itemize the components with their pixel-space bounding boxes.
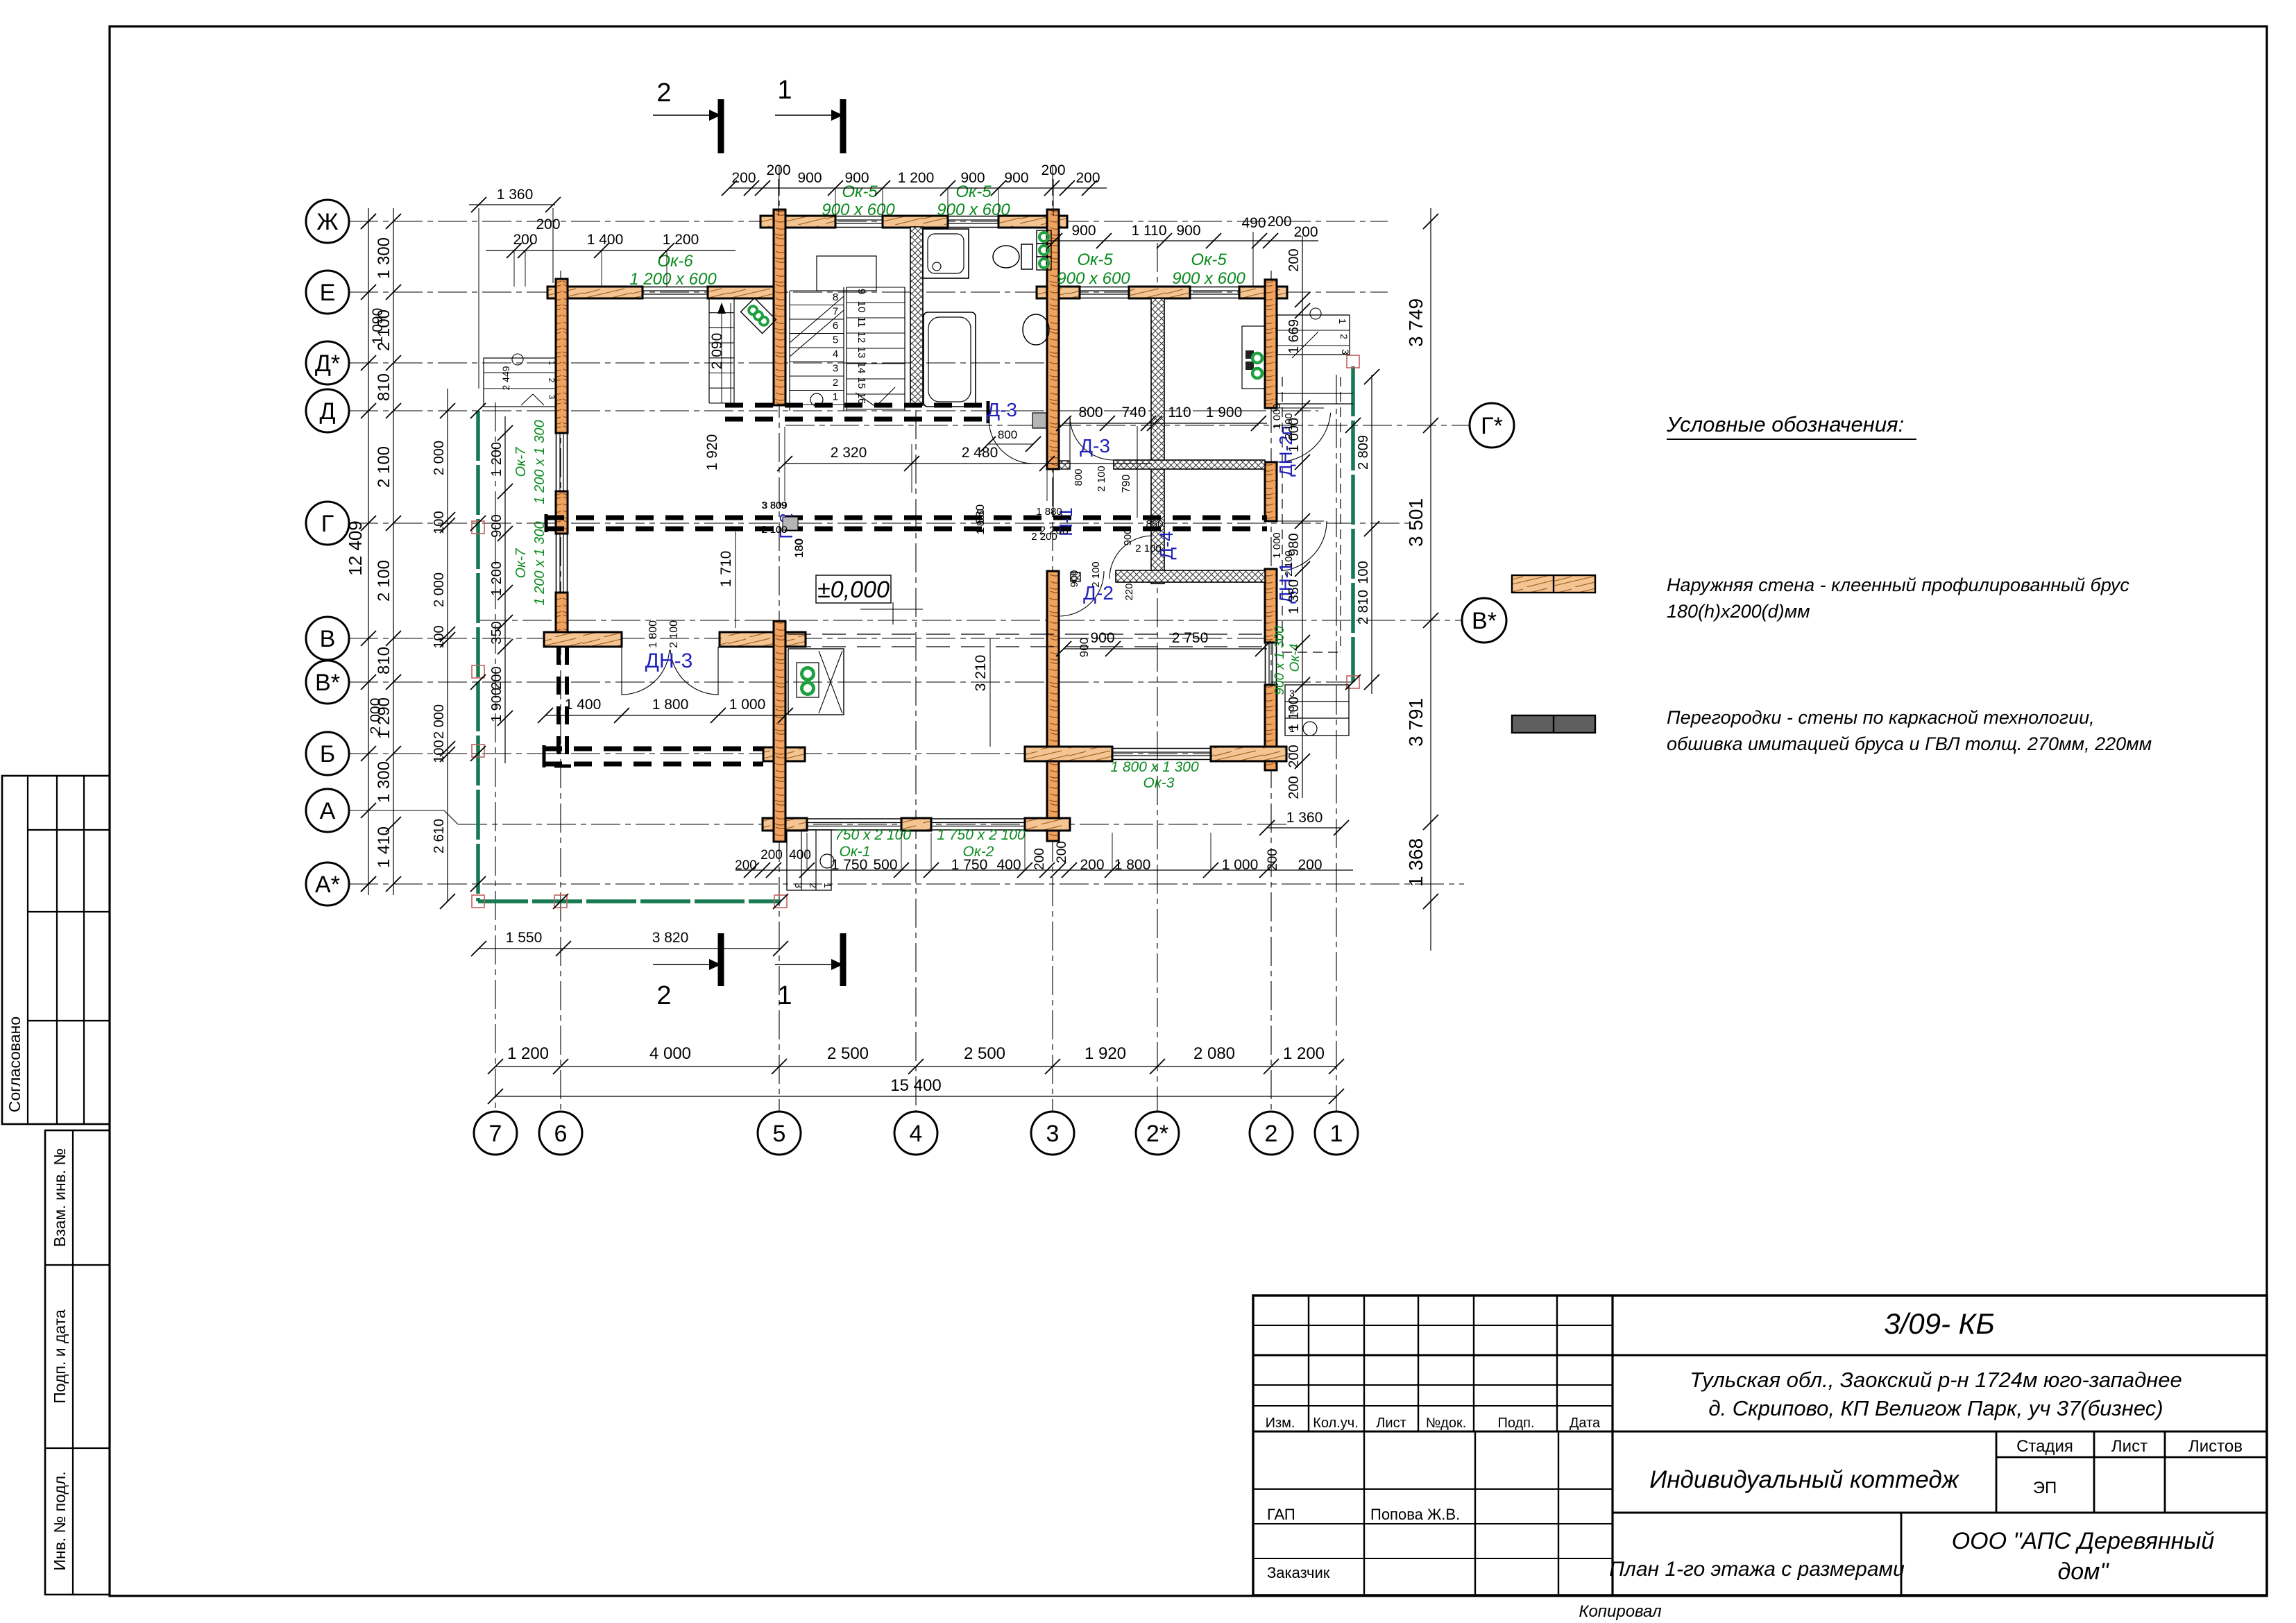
svg-text:Д*: Д* (315, 350, 340, 377)
svg-text:1: 1 (1337, 318, 1348, 324)
svg-text:3: 3 (1340, 349, 1351, 355)
svg-text:7: 7 (489, 1121, 502, 1147)
svg-text:ЭП: ЭП (2033, 1479, 2057, 1497)
svg-text:3 791: 3 791 (1405, 698, 1427, 747)
svg-text:1 200: 1 200 (489, 561, 504, 596)
svg-text:1 200: 1 200 (663, 232, 699, 248)
svg-text:1 880: 1 880 (973, 504, 987, 534)
svg-text:1: 1 (777, 981, 792, 1010)
svg-text:№док.: №док. (1426, 1416, 1467, 1431)
svg-text:2 000: 2 000 (368, 698, 384, 735)
svg-text:900: 900 (1069, 570, 1080, 587)
svg-text:1 669: 1 669 (1286, 319, 1302, 354)
svg-text:200: 200 (1041, 162, 1065, 178)
svg-text:2 500: 2 500 (827, 1044, 869, 1063)
svg-text:2 080: 2 080 (1193, 1044, 1235, 1063)
svg-text:Д-3: Д-3 (987, 399, 1017, 420)
svg-text:2 449: 2 449 (500, 366, 511, 390)
svg-text:900: 900 (960, 170, 985, 186)
svg-text:Ок-5: Ок-5 (1077, 250, 1113, 269)
svg-text:900: 900 (1176, 223, 1200, 239)
svg-text:3 210: 3 210 (973, 655, 989, 692)
svg-text:Г*: Г* (1481, 413, 1503, 439)
svg-text:400: 400 (996, 857, 1021, 873)
svg-text:Ок-7: Ок-7 (513, 447, 529, 477)
svg-text:2 750: 2 750 (1172, 630, 1209, 646)
svg-text:2 809: 2 809 (1356, 435, 1371, 470)
svg-text:Ок-4: Ок-4 (1288, 644, 1302, 672)
svg-text:15: 15 (856, 377, 867, 389)
svg-text:6: 6 (833, 320, 838, 332)
svg-text:900: 900 (1004, 170, 1028, 186)
svg-text:2: 2 (547, 378, 556, 383)
svg-text:3: 3 (547, 395, 556, 400)
svg-text:дом": дом" (2057, 1558, 2109, 1585)
svg-text:1 200: 1 200 (898, 170, 935, 186)
svg-text:100: 100 (432, 625, 447, 648)
svg-text:1 360: 1 360 (497, 187, 534, 203)
svg-text:1 090: 1 090 (370, 308, 386, 345)
svg-text:14: 14 (856, 362, 867, 374)
svg-text:Тульская обл., Заокский р-н 17: Тульская обл., Заокский р-н 1724м юго-за… (1690, 1368, 2182, 1392)
svg-text:Согласовано: Согласовано (6, 1017, 24, 1112)
svg-text:1 920: 1 920 (1085, 1044, 1126, 1063)
svg-text:13: 13 (856, 347, 867, 359)
svg-text:Лист: Лист (1376, 1416, 1406, 1431)
svg-text:Д: Д (319, 398, 335, 425)
svg-text:Копировал: Копировал (1579, 1602, 1662, 1621)
svg-text:2: 2 (656, 78, 671, 108)
svg-text:Лист: Лист (2111, 1437, 2148, 1456)
svg-text:200: 200 (536, 216, 560, 232)
svg-text:1 710: 1 710 (718, 551, 734, 588)
svg-text:1 200: 1 200 (507, 1044, 549, 1063)
svg-text:200: 200 (1266, 849, 1280, 871)
svg-text:2 090: 2 090 (709, 333, 725, 370)
svg-text:Условные обозначения:: Условные обозначения: (1666, 412, 1904, 436)
svg-text:900: 900 (489, 514, 504, 537)
svg-text:1 200: 1 200 (1283, 1044, 1325, 1063)
svg-text:Г: Г (321, 511, 334, 537)
svg-text:5: 5 (833, 334, 838, 346)
svg-text:2 100: 2 100 (761, 524, 788, 536)
svg-text:обшивка имитацией бруса и ГВЛ: обшивка имитацией бруса и ГВЛ толщ. 270м… (1667, 733, 2152, 754)
svg-text:2 000: 2 000 (432, 572, 447, 607)
svg-text:2 100: 2 100 (375, 560, 393, 602)
svg-text:ДН-3: ДН-3 (645, 649, 693, 672)
svg-text:1 100: 1 100 (1286, 697, 1302, 731)
svg-text:2 000: 2 000 (432, 441, 447, 475)
svg-text:Ок-7: Ок-7 (513, 548, 529, 579)
svg-text:1: 1 (822, 883, 833, 888)
svg-text:810: 810 (375, 647, 393, 674)
svg-text:1 900: 1 900 (489, 688, 504, 722)
svg-text:3 749: 3 749 (1405, 298, 1427, 347)
svg-text:Е: Е (320, 280, 336, 306)
svg-text:План 1-го этажа с размерами: План 1-го этажа с размерами (1609, 1558, 1905, 1581)
svg-text:200: 200 (766, 162, 790, 178)
svg-text:1 200 x 600: 1 200 x 600 (629, 270, 717, 289)
svg-text:200: 200 (489, 666, 504, 689)
svg-text:3 820: 3 820 (652, 930, 689, 946)
svg-text:1 400: 1 400 (565, 697, 602, 713)
svg-text:ГАП: ГАП (1267, 1506, 1295, 1523)
svg-text:1 750 x 2 100: 1 750 x 2 100 (937, 827, 1026, 843)
svg-text:4: 4 (833, 348, 838, 360)
svg-text:2 100: 2 100 (668, 620, 680, 648)
svg-text:1 000: 1 000 (1271, 403, 1283, 430)
svg-text:ООО "АПС Деревянный: ООО "АПС Деревянный (1952, 1528, 2215, 1554)
svg-text:6: 6 (554, 1121, 568, 1147)
svg-text:1 000: 1 000 (1222, 857, 1259, 873)
svg-text:1 880: 1 880 (1036, 506, 1062, 518)
svg-text:200: 200 (760, 848, 783, 863)
svg-text:4 000: 4 000 (649, 1044, 691, 1063)
svg-text:4: 4 (910, 1121, 923, 1147)
svg-text:Стадия: Стадия (2016, 1437, 2073, 1456)
svg-text:200: 200 (1286, 248, 1302, 271)
svg-text:200: 200 (1298, 857, 1322, 873)
svg-text:1 000: 1 000 (1271, 532, 1283, 559)
svg-text:12: 12 (856, 332, 867, 343)
svg-text:180: 180 (792, 538, 806, 558)
svg-text:900 x 600: 900 x 600 (1172, 269, 1245, 288)
svg-text:д. Скрипово, КП Велигож Парк,: д. Скрипово, КП Велигож Парк, уч 37(бизн… (1708, 1396, 2163, 1420)
svg-text:5: 5 (773, 1121, 786, 1147)
svg-text:2: 2 (833, 377, 838, 389)
svg-text:А*: А* (315, 872, 340, 898)
svg-text:2 000: 2 000 (432, 704, 447, 739)
svg-text:3 809: 3 809 (761, 500, 788, 511)
svg-text:1: 1 (833, 391, 838, 403)
svg-text:490: 490 (1241, 215, 1266, 231)
svg-text:1 000: 1 000 (1286, 418, 1302, 452)
svg-text:1 410: 1 410 (375, 826, 393, 868)
svg-text:100: 100 (432, 740, 447, 763)
svg-text:200: 200 (731, 170, 756, 186)
svg-text:1 200 x 1 300: 1 200 x 1 300 (532, 521, 547, 605)
svg-text:740: 740 (1121, 405, 1146, 420)
svg-text:В: В (320, 626, 336, 652)
svg-text:2: 2 (1265, 1121, 1278, 1147)
svg-text:180(h)x200(d)мм: 180(h)x200(d)мм (1667, 601, 1810, 622)
svg-text:Перегородки - стены по каркасн: Перегородки - стены по каркасной техноло… (1667, 707, 2095, 728)
svg-text:900: 900 (1071, 223, 1096, 239)
svg-text:2: 2 (656, 981, 671, 1010)
svg-text:Подп. и дата: Подп. и дата (51, 1309, 69, 1404)
svg-text:15 400: 15 400 (890, 1076, 941, 1095)
svg-text:200: 200 (1032, 848, 1047, 870)
svg-text:3: 3 (793, 883, 804, 888)
svg-text:Кол.уч.: Кол.уч. (1313, 1416, 1359, 1431)
svg-text:900: 900 (844, 170, 869, 186)
svg-text:1: 1 (547, 361, 556, 366)
svg-text:2: 2 (1338, 334, 1350, 339)
svg-text:200: 200 (1286, 776, 1302, 799)
svg-text:1 400: 1 400 (587, 232, 624, 248)
svg-text:Попова Ж.В.: Попова Ж.В. (1370, 1506, 1460, 1523)
svg-text:1 360: 1 360 (1286, 810, 1323, 826)
svg-text:860: 860 (1146, 518, 1163, 530)
svg-text:1 550: 1 550 (506, 930, 543, 946)
svg-text:1 300: 1 300 (375, 761, 393, 803)
svg-text:200: 200 (513, 232, 537, 248)
svg-text:3 501: 3 501 (1405, 498, 1427, 547)
svg-text:2 480: 2 480 (962, 445, 998, 461)
svg-text:1 368: 1 368 (1405, 838, 1427, 887)
svg-text:900: 900 (1090, 630, 1114, 646)
svg-text:200: 200 (1080, 857, 1104, 873)
svg-text:1: 1 (1330, 1121, 1343, 1147)
svg-text:350: 350 (489, 621, 504, 644)
svg-text:2 320: 2 320 (831, 445, 867, 461)
svg-text:200: 200 (1267, 214, 1291, 230)
svg-text:1 350: 1 350 (1286, 579, 1302, 614)
svg-text:750 x 2 100: 750 x 2 100 (835, 827, 911, 843)
svg-text:110: 110 (1168, 405, 1191, 420)
svg-text:2 500: 2 500 (964, 1044, 1005, 1063)
svg-text:1 200 x 1 300: 1 200 x 1 300 (532, 420, 547, 504)
svg-text:Индивидуальный коттедж: Индивидуальный коттедж (1649, 1466, 1959, 1493)
svg-text:Листов: Листов (2188, 1437, 2243, 1456)
svg-text:200: 200 (1075, 170, 1100, 186)
svg-text:1 000: 1 000 (729, 697, 766, 713)
svg-text:1 800: 1 800 (647, 620, 659, 648)
svg-text:Подп.: Подп. (1497, 1416, 1534, 1431)
svg-text:1: 1 (777, 76, 792, 105)
svg-text:±0,000: ±0,000 (817, 577, 890, 603)
svg-text:9: 9 (856, 289, 867, 294)
svg-text:1 920: 1 920 (704, 434, 720, 471)
svg-text:11: 11 (856, 316, 867, 328)
svg-text:Д-3: Д-3 (1080, 435, 1110, 457)
svg-text:1 110: 1 110 (1132, 223, 1167, 239)
svg-text:В*: В* (1472, 608, 1497, 634)
svg-text:980: 980 (1286, 533, 1302, 556)
svg-text:900: 900 (797, 170, 822, 186)
svg-text:2*: 2* (1146, 1121, 1168, 1147)
svg-text:1 800: 1 800 (1114, 857, 1151, 873)
svg-text:800: 800 (998, 428, 1017, 441)
svg-text:10: 10 (856, 301, 867, 313)
svg-text:Изм.: Изм. (1266, 1416, 1295, 1431)
svg-text:900 x 600: 900 x 600 (1057, 269, 1130, 288)
svg-text:900: 900 (1122, 528, 1134, 545)
svg-text:1 800 x 1 300: 1 800 x 1 300 (1110, 759, 1199, 775)
svg-text:900 x 1 300: 900 x 1 300 (1273, 626, 1287, 695)
svg-text:Заказчик: Заказчик (1267, 1564, 1330, 1581)
svg-text:1 800: 1 800 (652, 697, 689, 713)
svg-text:500: 500 (873, 857, 897, 873)
svg-text:Дата: Дата (1570, 1416, 1601, 1431)
svg-text:Инв. № подл.: Инв. № подл. (51, 1471, 69, 1570)
svg-text:200: 200 (1293, 224, 1318, 240)
svg-text:Ок-3: Ок-3 (1143, 775, 1175, 791)
svg-text:2 100: 2 100 (375, 446, 393, 488)
svg-text:2 100: 2 100 (1090, 561, 1102, 588)
svg-text:900 x 600: 900 x 600 (822, 201, 895, 219)
svg-text:В*: В* (315, 670, 340, 696)
svg-text:3/09- КБ: 3/09- КБ (1884, 1307, 1995, 1340)
svg-text:200: 200 (1286, 745, 1302, 767)
svg-text:200: 200 (1055, 841, 1069, 863)
svg-text:Ж: Ж (316, 209, 338, 235)
svg-text:2 100: 2 100 (1096, 466, 1107, 492)
svg-text:800: 800 (1073, 468, 1085, 486)
svg-text:900: 900 (1078, 638, 1091, 657)
svg-text:220: 220 (1123, 583, 1135, 600)
svg-text:2 100: 2 100 (1135, 543, 1162, 554)
svg-text:100: 100 (1356, 561, 1371, 584)
svg-text:100: 100 (432, 511, 447, 534)
svg-text:2 810: 2 810 (1356, 590, 1371, 624)
svg-text:1 200: 1 200 (489, 442, 504, 477)
svg-text:1 900: 1 900 (1206, 405, 1243, 420)
svg-text:А: А (320, 798, 336, 824)
svg-text:200: 200 (735, 858, 757, 873)
svg-text:1 300: 1 300 (375, 237, 393, 279)
svg-text:Наружняя стена - клеенный про: Наружняя стена - клеенный профилированны… (1667, 575, 2129, 595)
svg-text:2 200: 2 200 (1039, 524, 1069, 537)
svg-text:2 610: 2 610 (432, 819, 447, 853)
svg-text:Б: Б (320, 741, 335, 767)
svg-text:Взам. инв. №: Взам. инв. № (51, 1148, 69, 1248)
svg-text:800: 800 (1078, 405, 1103, 420)
svg-text:2: 2 (808, 883, 819, 888)
svg-text:1 750: 1 750 (831, 857, 868, 873)
svg-text:3: 3 (1046, 1121, 1060, 1147)
svg-text:Ок-5: Ок-5 (1191, 250, 1227, 269)
svg-text:400: 400 (789, 848, 811, 863)
svg-text:810: 810 (375, 373, 393, 401)
svg-text:3: 3 (833, 363, 838, 375)
svg-text:790: 790 (1121, 475, 1132, 493)
svg-text:1 750: 1 750 (951, 857, 988, 873)
